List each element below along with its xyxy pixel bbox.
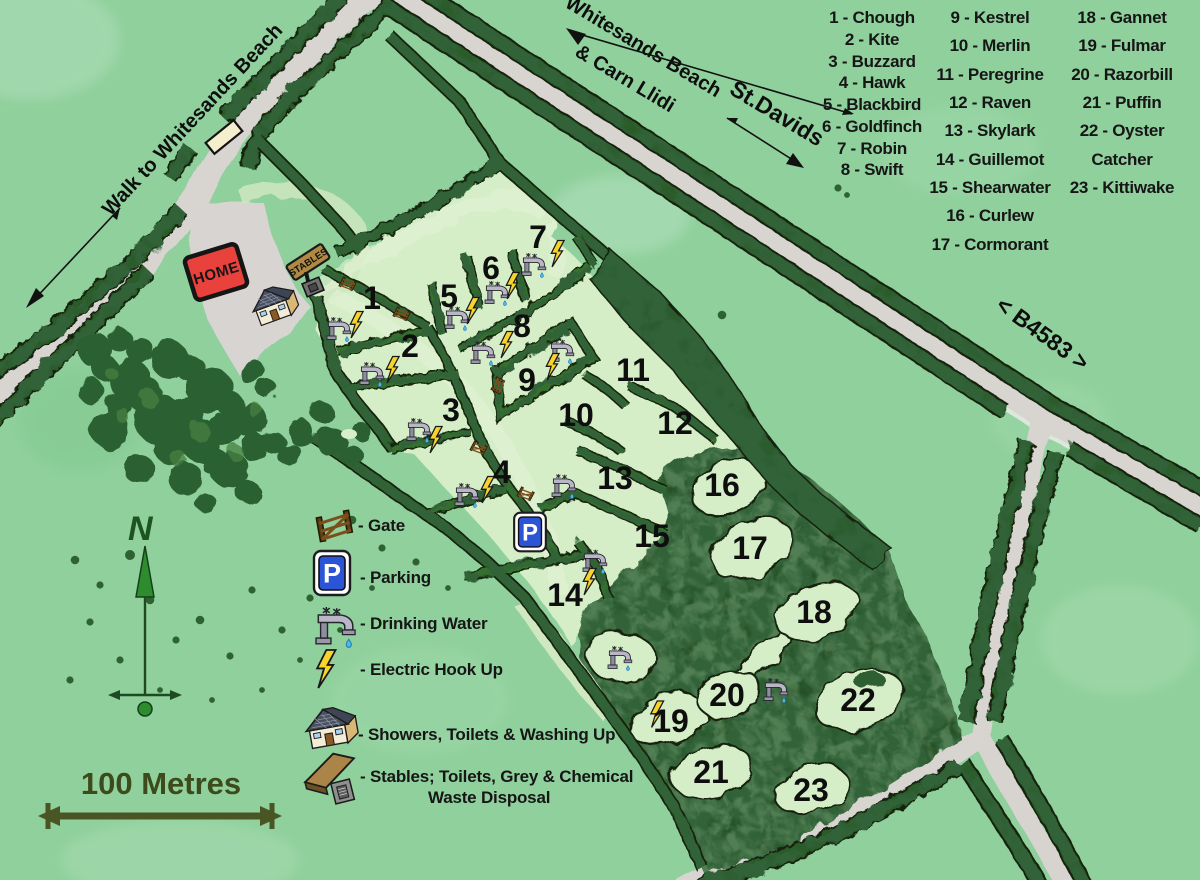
svg-text:11: 11 (616, 352, 650, 388)
svg-text:18: 18 (796, 594, 832, 630)
svg-text:15 - Shearwater: 15 - Shearwater (929, 178, 1051, 197)
svg-text:4 - Hawk: 4 - Hawk (839, 73, 906, 92)
svg-text:22 - Oyster: 22 - Oyster (1080, 121, 1165, 140)
svg-text:16: 16 (704, 467, 740, 503)
svg-text:13: 13 (597, 460, 633, 496)
svg-text:10 - Merlin: 10 - Merlin (950, 36, 1031, 55)
svg-text:19 - Fulmar: 19 - Fulmar (1078, 36, 1166, 55)
svg-text:8: 8 (513, 308, 531, 344)
svg-text:5: 5 (440, 278, 458, 314)
svg-text:22: 22 (840, 682, 876, 718)
svg-text:16 - Curlew: 16 - Curlew (946, 206, 1034, 225)
svg-text:14 - Guillemot: 14 - Guillemot (936, 150, 1045, 169)
svg-text:N: N (128, 510, 154, 548)
svg-text:21 - Puffin: 21 - Puffin (1083, 93, 1162, 112)
svg-text:12 - Raven: 12 - Raven (949, 93, 1031, 112)
svg-text:- Electric Hook Up: - Electric Hook Up (360, 660, 503, 679)
svg-text:- Parking: - Parking (360, 568, 431, 587)
svg-text:20 - Razorbill: 20 - Razorbill (1071, 65, 1173, 84)
svg-text:- Stables; Toilets, Grey & Che: - Stables; Toilets, Grey & Chemical (360, 767, 633, 786)
svg-text:2 - Kite: 2 - Kite (845, 30, 899, 49)
svg-text:14: 14 (547, 577, 583, 613)
svg-text:4: 4 (493, 454, 511, 490)
svg-text:9: 9 (518, 362, 536, 398)
svg-text:15: 15 (634, 518, 670, 554)
svg-text:6 - Goldfinch: 6 - Goldfinch (822, 117, 922, 136)
svg-text:- Gate: - Gate (358, 516, 405, 535)
svg-text:23 - Kittiwake: 23 - Kittiwake (1070, 178, 1174, 197)
svg-text:Waste Disposal: Waste Disposal (428, 788, 550, 807)
svg-text:20: 20 (709, 677, 745, 713)
svg-text:1: 1 (363, 280, 381, 316)
svg-text:19: 19 (653, 703, 689, 739)
svg-text:7 - Robin: 7 - Robin (837, 139, 907, 158)
svg-text:12: 12 (657, 405, 693, 441)
svg-text:5 - Blackbird: 5 - Blackbird (823, 95, 921, 114)
svg-text:3 - Buzzard: 3 - Buzzard (828, 52, 915, 71)
svg-text:17 - Cormorant: 17 - Cormorant (932, 235, 1049, 254)
svg-text:3: 3 (442, 392, 460, 428)
svg-text:10: 10 (558, 397, 594, 433)
svg-text:9 - Kestrel: 9 - Kestrel (951, 8, 1030, 27)
svg-text:Catcher: Catcher (1091, 150, 1153, 169)
svg-text:23: 23 (793, 772, 829, 808)
svg-text:6: 6 (482, 250, 500, 286)
svg-text:17: 17 (732, 530, 768, 566)
svg-text:8 - Swift: 8 - Swift (841, 160, 904, 179)
svg-text:7: 7 (529, 219, 547, 255)
svg-text:11 - Peregrine: 11 - Peregrine (936, 65, 1043, 84)
svg-text:100 Metres: 100 Metres (81, 766, 241, 801)
svg-text:13 - Skylark: 13 - Skylark (945, 121, 1037, 140)
svg-text:1 - Chough: 1 - Chough (829, 8, 915, 27)
svg-text:- Showers, Toilets & Washing U: - Showers, Toilets & Washing Up (358, 725, 615, 744)
svg-text:- Drinking Water: - Drinking Water (360, 614, 488, 633)
svg-text:2: 2 (401, 328, 419, 364)
svg-text:18 - Gannet: 18 - Gannet (1077, 8, 1167, 27)
svg-text:21: 21 (693, 754, 729, 790)
